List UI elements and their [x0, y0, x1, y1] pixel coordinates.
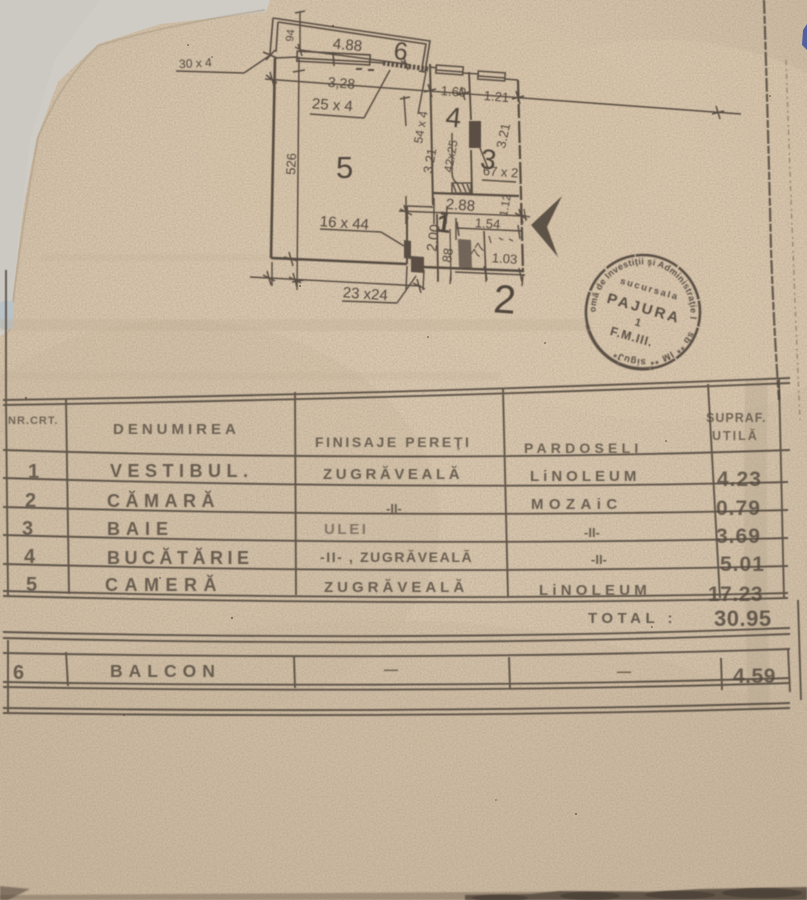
svg-text:526: 526 — [283, 153, 299, 175]
svg-text:67 x 2: 67 x 2 — [482, 163, 518, 180]
svg-text:CAMERĂ: CAMERĂ — [105, 574, 223, 595]
svg-text:SUPRAF.: SUPRAF. — [706, 411, 766, 425]
svg-text:-II- , ZUGRĂVEALĂ: -II- , ZUGRĂVEALĂ — [320, 549, 473, 565]
svg-text:3,28: 3,28 — [327, 74, 356, 92]
svg-text:—: — — [384, 661, 398, 677]
svg-text:5.01: 5.01 — [720, 553, 765, 576]
svg-text:ZUGRĂVEALĂ: ZUGRĂVEALĂ — [324, 579, 468, 596]
svg-text:2.88: 2.88 — [445, 196, 475, 215]
svg-text:PARDOSELI: PARDOSELI — [524, 440, 642, 456]
svg-text:30 x 4: 30 x 4 — [179, 55, 213, 71]
svg-text:1.21: 1.21 — [483, 88, 510, 105]
svg-text:—: — — [617, 663, 631, 679]
svg-text:4.88: 4.88 — [332, 36, 363, 55]
svg-text:ULEI: ULEI — [324, 521, 369, 538]
svg-text:1.03: 1.03 — [491, 250, 517, 267]
svg-text:ZUGRĂVEALĂ: ZUGRĂVEALĂ — [323, 466, 463, 483]
svg-text:4.59: 4.59 — [733, 665, 776, 688]
svg-text:-II-: -II- — [386, 501, 402, 516]
svg-text:94: 94 — [284, 29, 297, 43]
svg-text:LiNOLEUM: LiNOLEUM — [530, 468, 640, 485]
svg-text:0.79: 0.79 — [716, 497, 761, 520]
svg-text:TOTAL :: TOTAL : — [588, 610, 677, 627]
svg-text:UTILĂ: UTILĂ — [712, 428, 759, 443]
svg-text:88: 88 — [439, 247, 456, 263]
svg-text:1.54: 1.54 — [474, 215, 500, 232]
svg-text:BALCON: BALCON — [110, 661, 221, 681]
svg-text:-II-: -II- — [584, 525, 600, 540]
svg-text:6: 6 — [392, 37, 409, 66]
svg-text:5: 5 — [336, 150, 353, 185]
svg-text:LiNOLEUM: LiNOLEUM — [539, 582, 651, 599]
svg-text:NR.CRT.: NR.CRT. — [8, 415, 58, 427]
svg-text:2: 2 — [25, 490, 36, 512]
svg-text:FINISAJE PEREŢI: FINISAJE PEREŢI — [315, 434, 471, 450]
svg-text:-II-: -II- — [591, 552, 607, 567]
svg-text:MOZAiC: MOZAiC — [531, 496, 623, 513]
svg-text:2: 2 — [492, 277, 517, 322]
svg-text:CĂMARĂ: CĂMARĂ — [107, 490, 220, 511]
svg-text:3.69: 3.69 — [716, 525, 761, 548]
svg-text:25 x 4: 25 x 4 — [311, 95, 353, 115]
svg-text:1.60: 1.60 — [440, 83, 467, 100]
svg-text:BUCĂTĂRIE: BUCĂTĂRIE — [107, 547, 254, 568]
svg-text:17.23: 17.23 — [708, 583, 763, 606]
svg-text:BAIE: BAIE — [107, 519, 174, 539]
svg-text:3: 3 — [22, 518, 33, 540]
svg-text:DENUMIREA: DENUMIREA — [113, 421, 240, 438]
svg-text:4: 4 — [444, 101, 463, 133]
svg-text:4.23: 4.23 — [717, 468, 762, 491]
svg-text:6: 6 — [13, 662, 24, 684]
svg-text:30.95: 30.95 — [714, 606, 772, 631]
svg-text:5: 5 — [26, 574, 37, 596]
svg-text:VESTIBUL.: VESTIBUL. — [110, 461, 254, 481]
svg-text:1: 1 — [28, 461, 39, 483]
svg-text:4: 4 — [24, 546, 36, 568]
